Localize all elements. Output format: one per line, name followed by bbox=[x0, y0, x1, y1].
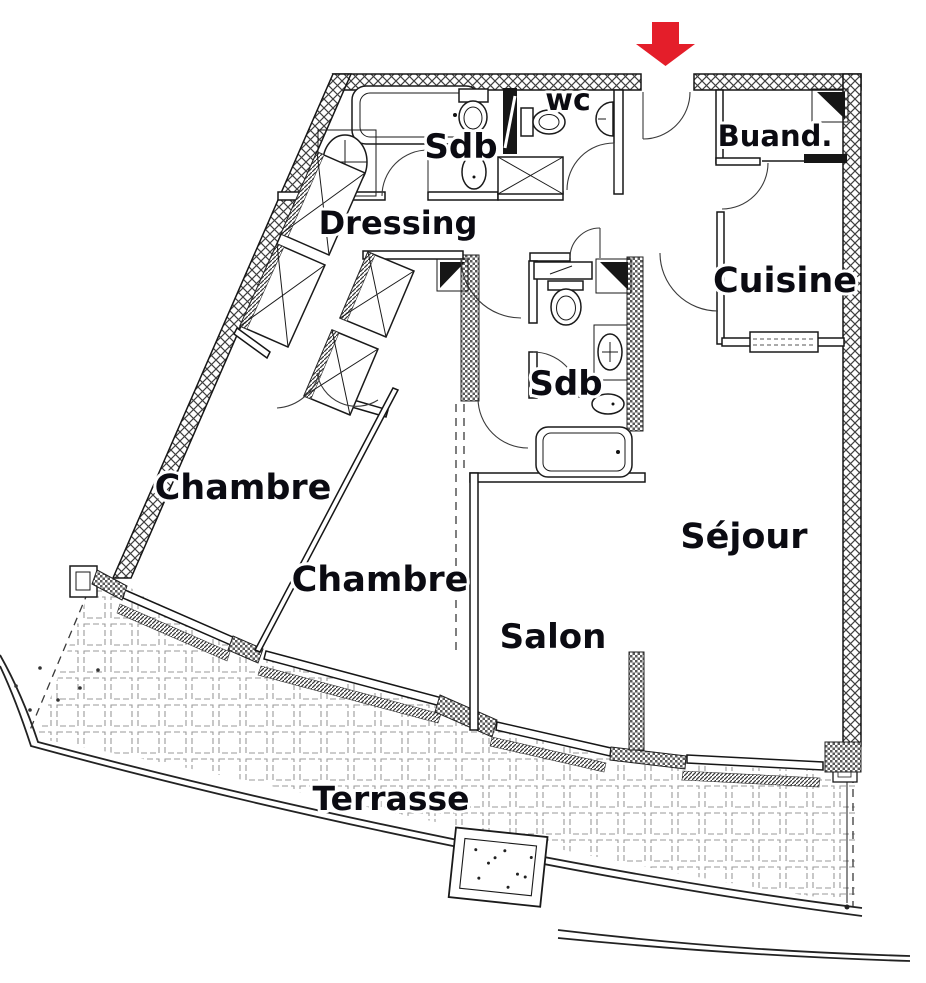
top-wall-right bbox=[694, 74, 861, 90]
room-label-bathroom-main: Sdb bbox=[424, 127, 497, 167]
door-bath-main bbox=[382, 150, 428, 196]
facade-pier-4 bbox=[825, 742, 861, 772]
wall-laundry-bottom bbox=[716, 158, 760, 165]
shelf-triangle-bath2 bbox=[600, 262, 628, 290]
wardrobe-3 bbox=[340, 252, 414, 337]
door-bath2-top bbox=[570, 228, 600, 258]
front-door bbox=[643, 92, 690, 139]
pier-lounge-living bbox=[629, 652, 644, 750]
wall-bedroom-divider bbox=[255, 388, 398, 652]
wall-bath1-bottom-b bbox=[428, 192, 498, 200]
bathtub-main-drain bbox=[453, 113, 457, 117]
door-kitchen bbox=[660, 253, 718, 311]
room-label-laundry: Buand. bbox=[718, 119, 833, 153]
room-label-terrace: Terrasse bbox=[313, 779, 470, 818]
planter-box bbox=[449, 827, 548, 906]
wall-lounge-left bbox=[470, 473, 478, 730]
bidet-bath2-drain bbox=[612, 403, 615, 406]
dressing-wardrobes bbox=[240, 152, 414, 415]
shelf-triangle-laundry bbox=[817, 92, 845, 119]
room-label-bathroom-2: Sdb bbox=[529, 364, 602, 404]
entrance-arrow-icon bbox=[636, 22, 695, 66]
floorplan-page: Sdb wc Buand. Dressing Cuisine Sdb Chamb… bbox=[0, 0, 926, 983]
toilet-wc-tank bbox=[521, 108, 533, 136]
serving-hatch bbox=[750, 332, 818, 352]
door-laundry bbox=[722, 163, 768, 209]
wall-bath2-top bbox=[530, 253, 570, 261]
bathtub-bath2-drain bbox=[616, 450, 620, 454]
terrace-edge-dot bbox=[845, 905, 850, 910]
terrace-curb-line-2 bbox=[558, 938, 910, 961]
laundry-counter-bar bbox=[804, 154, 847, 163]
right-wall bbox=[843, 74, 861, 746]
room-label-kitchen: Cuisine bbox=[713, 261, 857, 301]
room-label-living: Séjour bbox=[680, 517, 808, 557]
room-label-dressing: Dressing bbox=[319, 204, 478, 242]
room-label-wc: wc bbox=[545, 83, 591, 118]
room-label-bedroom-1: Chambre bbox=[155, 468, 332, 508]
room-label-lounge: Salon bbox=[500, 617, 607, 657]
toilet-main-tank bbox=[459, 89, 488, 102]
kitchen-fixtures bbox=[750, 332, 818, 352]
wardrobe-4 bbox=[304, 330, 378, 415]
shelf-bath2 bbox=[534, 262, 592, 279]
pier-bath2-right bbox=[627, 257, 643, 431]
room-label-bedroom-2: Chambre bbox=[292, 560, 469, 600]
wall-wc-right bbox=[614, 90, 623, 194]
door-wc bbox=[567, 143, 614, 190]
door-corridor-end bbox=[478, 398, 528, 448]
floorplan-canvas: Sdb wc Buand. Dressing Cuisine Sdb Chamb… bbox=[0, 0, 926, 983]
bidet-main-drain bbox=[473, 176, 476, 179]
